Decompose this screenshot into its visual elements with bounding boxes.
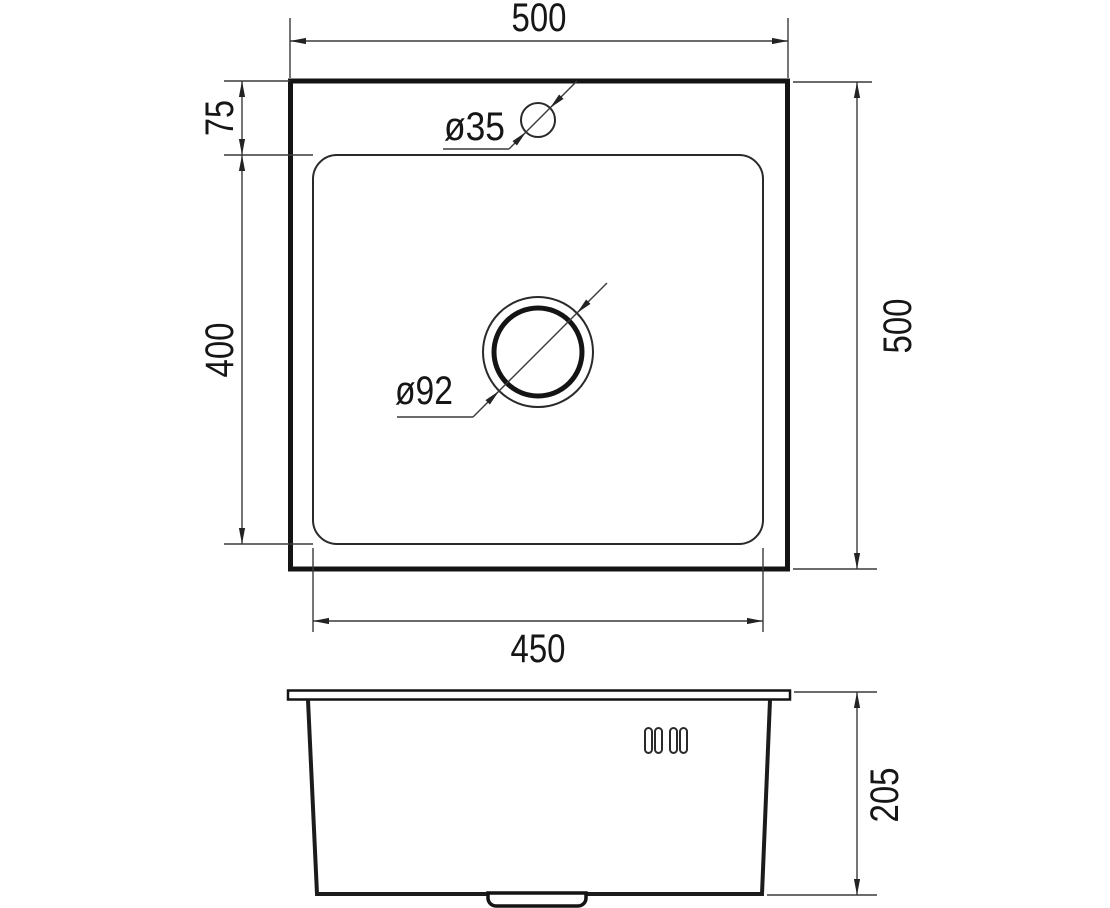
drain-outlet-stub [488, 893, 586, 906]
dimension-bowl-length: 400 [198, 155, 313, 544]
overall-width-label: 500 [512, 0, 567, 40]
vent-slot [655, 728, 662, 753]
drawing-canvas: ø35 ø92 500 75 400 [0, 0, 1110, 908]
sink-technical-drawing: ø35 ø92 500 75 400 [0, 0, 1110, 908]
dimension-faucet-offset: 75 [198, 81, 313, 155]
overflow-slots-icon [645, 728, 687, 753]
faucet-leader-arrow-upper [550, 81, 577, 108]
drain-leader-arrow-upper [577, 283, 607, 313]
faucet-leader-arrow-lower [509, 132, 526, 149]
bowl-profile [308, 700, 770, 894]
drain-leader-arrow-lower [473, 391, 499, 417]
drain-leader-chord [499, 313, 577, 391]
top-view: ø35 ø92 500 75 400 [198, 0, 920, 671]
drain-diameter-label: ø92 [395, 369, 453, 413]
bowl-rim-outline [313, 155, 763, 544]
vent-slot [645, 728, 652, 753]
faucet-offset-label: 75 [198, 100, 242, 136]
bowl-length-label: 400 [198, 323, 242, 378]
front-view: 205 [288, 691, 907, 907]
faucet-leader-chord [526, 108, 550, 132]
faucet-diameter-label: ø35 [444, 105, 505, 149]
overall-depth-label: 500 [876, 299, 920, 354]
sink-flange-profile [288, 691, 790, 700]
vent-slot [670, 728, 677, 753]
dimension-bowl-height: 205 [767, 692, 907, 895]
dimension-bowl-width: 450 [313, 548, 763, 671]
vent-slot [680, 728, 687, 753]
bowl-height-label: 205 [863, 768, 907, 823]
dimension-overall-width: 500 [290, 0, 788, 78]
dimension-overall-depth: 500 [793, 82, 920, 569]
bowl-width-label: 450 [511, 627, 566, 671]
